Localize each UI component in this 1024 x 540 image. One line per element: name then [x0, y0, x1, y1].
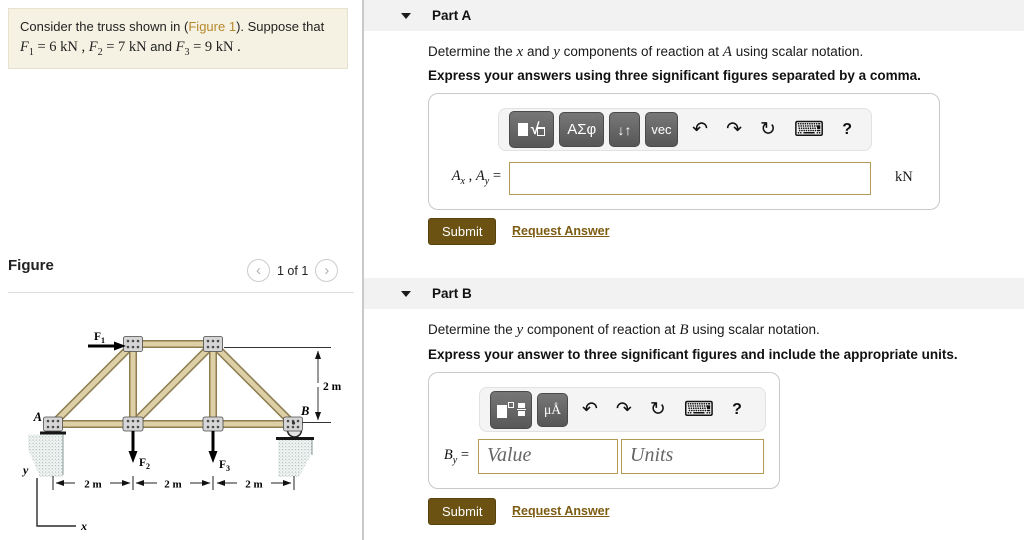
- part-b-answer-label: By =: [431, 447, 469, 466]
- force-label-f3: F3: [219, 459, 230, 473]
- undo-icon[interactable]: ↶: [692, 120, 708, 139]
- part-b-value-input[interactable]: [478, 439, 618, 474]
- part-b-title: Part B: [432, 286, 472, 301]
- part-a-answer-label: Ax , Ay =: [435, 168, 501, 187]
- part-b-submit-button[interactable]: Submit: [428, 498, 496, 525]
- coordinate-axes: [37, 478, 76, 526]
- dim-2m-2: 2 m: [164, 479, 181, 491]
- part-b-equation-toolbar: μÅ ↶ ↷ ↻ ⌨ ?: [479, 387, 766, 432]
- value-templates-button[interactable]: [490, 391, 532, 429]
- part-b-prompt: Determine the y component of reaction at…: [428, 322, 820, 339]
- part-b-instruction: Express your answer to three significant…: [428, 347, 958, 362]
- part-a-header: Part A: [364, 0, 1024, 31]
- reset-icon[interactable]: ↻: [650, 400, 666, 419]
- joint-label-A: A: [33, 410, 42, 424]
- dim-2m-height: 2 m: [323, 381, 342, 393]
- equation-template-icon: √: [518, 121, 546, 139]
- part-b-header: Part B: [364, 278, 1024, 309]
- greek-symbols-button[interactable]: ΑΣφ: [559, 112, 604, 147]
- redo-icon[interactable]: ↷: [726, 120, 742, 139]
- part-a-answer-input[interactable]: [509, 162, 871, 195]
- figure-divider: [8, 292, 354, 293]
- help-icon[interactable]: ?: [732, 402, 742, 418]
- keyboard-icon[interactable]: ⌨: [794, 119, 824, 140]
- truss-figure: F1 F2 F3 A B 2 m 2 m 2 m: [0, 295, 360, 540]
- part-a-instruction: Express your answers using three signifi…: [428, 68, 921, 83]
- problem-panel: Consider the truss shown in (Figure 1). …: [0, 0, 362, 540]
- part-a-prompt: Determine the x and y components of reac…: [428, 44, 863, 61]
- x-axis-label: x: [80, 519, 87, 533]
- units-template-button[interactable]: μÅ: [537, 393, 568, 427]
- dim-2m-1: 2 m: [84, 479, 101, 491]
- equation-templates-button[interactable]: √: [509, 111, 554, 148]
- part-a-collapse-toggle-icon[interactable]: [401, 13, 411, 19]
- figure-pager: ‹ 1 of 1 ›: [247, 259, 338, 282]
- answer-panel: Part A Determine the x and y components …: [364, 0, 1024, 540]
- chevron-left-icon: ‹: [256, 262, 261, 279]
- part-a-submit-button[interactable]: Submit: [428, 218, 496, 245]
- force-label-f1: F1: [94, 331, 105, 345]
- part-b-collapse-toggle-icon[interactable]: [401, 291, 411, 297]
- joint-label-B: B: [300, 404, 309, 418]
- force-label-f2: F2: [139, 457, 150, 471]
- help-icon[interactable]: ?: [842, 122, 852, 138]
- statement-text: Consider the truss shown in (: [20, 19, 188, 34]
- figure-section-title: Figure: [8, 257, 54, 274]
- part-a-answer-block: √ ΑΣφ ↓↑ vec ↶ ↷ ↻ ⌨ ? Ax , Ay = kN: [428, 93, 940, 210]
- part-a-request-answer-link[interactable]: Request Answer: [512, 224, 609, 238]
- value-template-icon: [497, 401, 526, 418]
- figure-next-button[interactable]: ›: [315, 259, 338, 282]
- statement-text: ). Suppose that: [236, 19, 324, 34]
- problem-statement: Consider the truss shown in (Figure 1). …: [8, 8, 348, 69]
- figure-1-link[interactable]: Figure 1: [188, 19, 236, 34]
- part-b-request-answer-link[interactable]: Request Answer: [512, 504, 609, 518]
- dim-2m-3: 2 m: [245, 479, 262, 491]
- given-f3: F3 = 9 kN: [176, 39, 234, 55]
- given-f1: F1 = 6 kN: [20, 39, 78, 55]
- part-b-units-input[interactable]: [621, 439, 764, 474]
- chevron-right-icon: ›: [324, 262, 329, 279]
- y-axis-label: y: [21, 463, 29, 477]
- part-a-equation-toolbar: √ ΑΣφ ↓↑ vec ↶ ↷ ↻ ⌨ ?: [498, 108, 872, 151]
- figure-page-count: 1 of 1: [277, 264, 308, 278]
- reset-icon[interactable]: ↻: [760, 120, 776, 139]
- subscript-superscript-button[interactable]: ↓↑: [609, 112, 639, 147]
- figure-prev-button[interactable]: ‹: [247, 259, 270, 282]
- given-f2: F2 = 7 kN: [89, 39, 147, 55]
- part-a-title: Part A: [432, 8, 471, 23]
- vector-button[interactable]: vec: [645, 112, 678, 147]
- mastering-problem-page: Consider the truss shown in (Figure 1). …: [0, 0, 1024, 540]
- redo-icon[interactable]: ↷: [616, 400, 632, 419]
- part-b-answer-block: μÅ ↶ ↷ ↻ ⌨ ? By =: [428, 372, 780, 489]
- keyboard-icon[interactable]: ⌨: [684, 399, 714, 420]
- undo-icon[interactable]: ↶: [582, 400, 598, 419]
- part-a-unit-label: kN: [895, 169, 913, 186]
